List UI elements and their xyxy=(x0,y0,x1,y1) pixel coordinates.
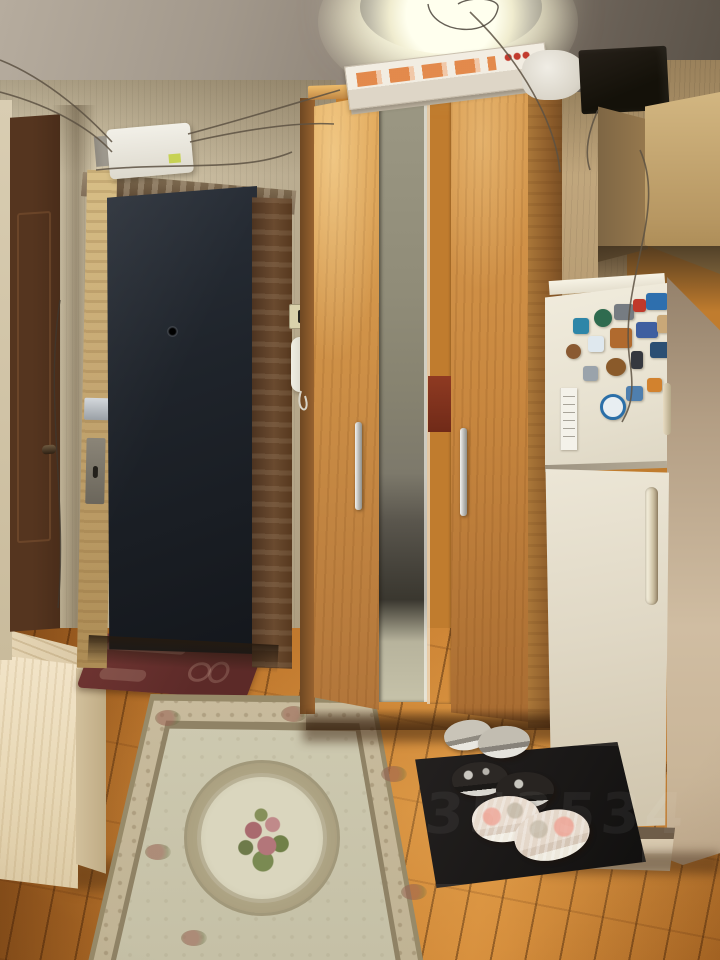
hallway-photo: 353534 xyxy=(0,0,720,960)
photo-vignette xyxy=(0,0,720,960)
